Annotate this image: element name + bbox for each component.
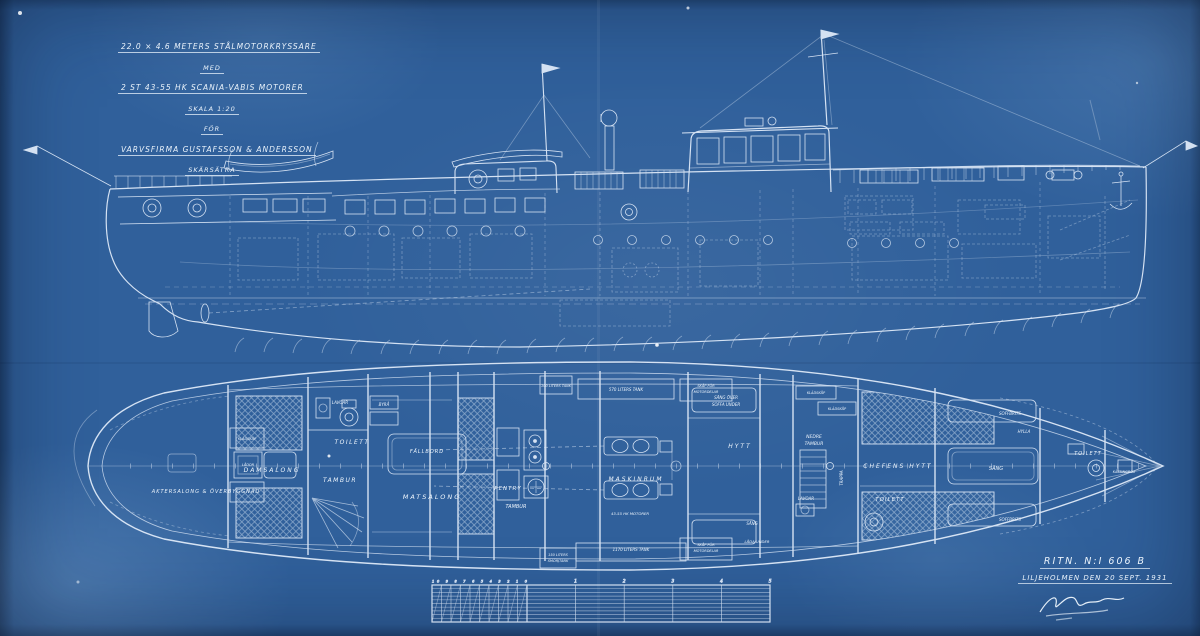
label-tambur-fwd: TAMBUR [805,441,824,447]
label-fallbord: FÄLLBORD [410,448,444,455]
label-nedre: NEDRE [806,434,822,440]
label-maskinrum: MASKINRUM [608,476,663,483]
label-chefens-hytt: CHEFENS HYTT [863,463,932,470]
label-aktersalong: AKTERSALONG & ÖVERBYGGNAD [151,488,260,495]
label-kattingbox: KÄTTINGBOX [1113,469,1136,474]
label-lada-under: LÅDA UNDER [744,539,769,544]
label-sang-mid: SÄNG [989,465,1003,472]
scale-ruler: 10 9 8 7 6 5 4 3 2 1 0 1 2 3 4 5 [432,579,772,623]
label-skap-btm-2: MOTORDELAR [694,549,719,553]
ruler-meter-1: 1 [574,579,577,585]
label-lavoar-mid: LAVOAR [798,496,814,501]
place-date: LILJEHOLMEN DEN 20 SEPT. 1931 [1018,574,1171,584]
title-block: 22.0 × 4.6 METERS STÅLMOTORKRYSSARE MED … [118,36,306,180]
label-matsalong: MATSALONG [403,493,462,501]
label-kladskap-2: KLÄDSKÅP [828,406,847,411]
title-line-med: MED [200,65,224,74]
label-trappa: TRAPPA [839,470,844,486]
ruler-sub-digits: 10 9 8 7 6 5 4 3 2 1 0 [432,580,528,584]
label-toilett-mid: TOILETT [875,497,905,503]
label-tank-150-1: 150 LITERS [548,553,569,557]
blueprint-sheet: AKTERSALONG & ÖVERBYGGNAD DAMSALONG KLÄD… [0,0,1200,636]
label-sang-over: SÄNG ÖVER [714,395,738,400]
ruler-meter-4: 4 [720,579,723,585]
title-line-engines: 2 ST 43-55 HK SCANIA-VABIS MOTORER [118,84,307,94]
label-toilett-aft: TOILETT [334,439,369,446]
signature [1040,597,1124,620]
label-sang-btm: SÄNG [746,521,757,526]
label-skap-top-2: MOTORDELAR [694,390,719,394]
label-motorer: 43-55 HK MOTORER [611,511,649,516]
label-soffbrits-btm: SOFFBRITS [999,517,1021,522]
label-byra: BYRÅ [379,402,390,407]
label-tank-1170: 1170 LITERS TANK [613,547,650,552]
label-hylla: HYLLA [1018,429,1031,434]
label-toilett-fwd: TOILETT [1074,451,1102,457]
title-line-scale: SKALA 1:20 [185,106,239,115]
title-line-client: VARVSFIRMA GUSTAFSSON & ANDERSSON [118,146,316,156]
title-line-for: FÖR [201,126,223,135]
label-tambur-mid: TAMBUR [506,504,527,510]
stamp-block: RITN. N:I 606 B LILJEHOLMEN DEN 20 SEPT.… [1000,556,1190,584]
label-skap-btm-1: SKÅP FÖR [697,542,715,547]
label-tank-100: 100 LITERS TANK [541,384,572,388]
ruler-meter-2: 2 [623,579,626,585]
label-tank-150-2: SMÖRJTANK [548,558,569,563]
label-tank-570: 570 LITERS TANK [609,387,644,392]
label-lador: LÅDOR [242,462,255,467]
label-kladskap-aft: KLÄDSKÅP [238,436,257,441]
title-line-dimensions: 22.0 × 4.6 METERS STÅLMOTORKRYSSARE [118,43,320,53]
drawing-number: RITN. N:I 606 B [1040,556,1150,569]
label-hytt: HYTT [728,443,752,450]
label-pentry: PENTRY [494,486,521,492]
label-soffbrits-top: SOFFBRITS [999,411,1021,416]
ruler-meter-5: 5 [769,579,772,585]
label-lavoar-aft: LAVOAR [332,400,348,405]
ruler-meter-3: 3 [671,579,674,585]
label-soffa-under: SOFFA UNDER [712,402,741,407]
label-tambur-aft: TAMBUR [323,477,357,484]
label-kladskap-1: KLÄDSKÅP [807,390,826,395]
label-damsalong: DAMSALONG [244,467,301,474]
label-skap-top-1: SKÅP FÖR [697,383,715,388]
title-line-place: SKÄRSÄTRA [185,167,238,176]
